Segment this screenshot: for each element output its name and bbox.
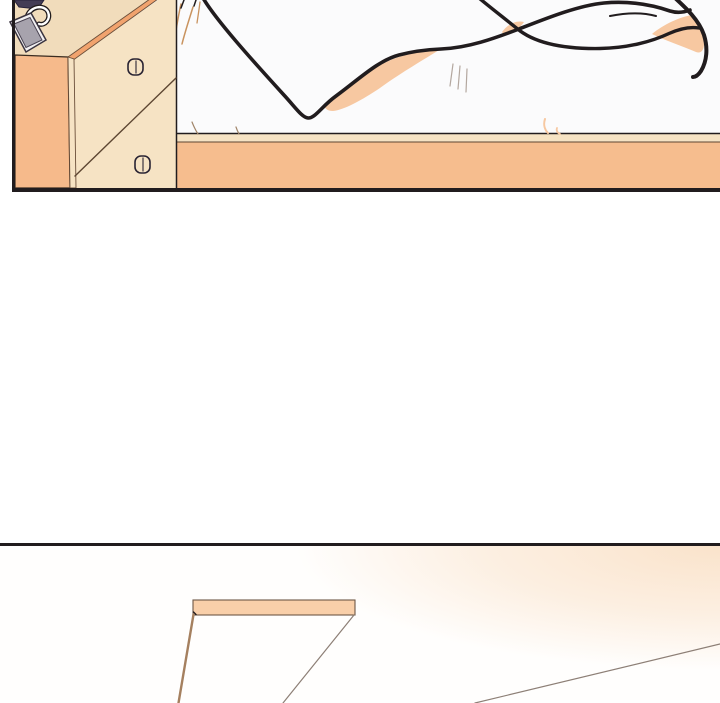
nightstand — [10, 0, 177, 188]
bed-frame-rail — [177, 142, 720, 188]
panel-border-bottom — [12, 188, 720, 192]
panel-top-art — [0, 0, 720, 192]
nightstand-side-face — [15, 55, 70, 188]
comic-page: { "page": { "type": "webtoon-comic-strip… — [0, 0, 720, 700]
panel-top — [0, 0, 720, 192]
bed-frame-top-strip — [177, 134, 720, 143]
floor-edge-line — [475, 644, 720, 703]
panel-bottom — [0, 543, 720, 700]
panel-bottom-art — [0, 546, 720, 703]
pendant-light-bar — [193, 600, 355, 615]
panel-border-left — [12, 0, 15, 192]
lamp-edge-right — [283, 615, 354, 703]
lamp-edge-left — [179, 615, 194, 703]
